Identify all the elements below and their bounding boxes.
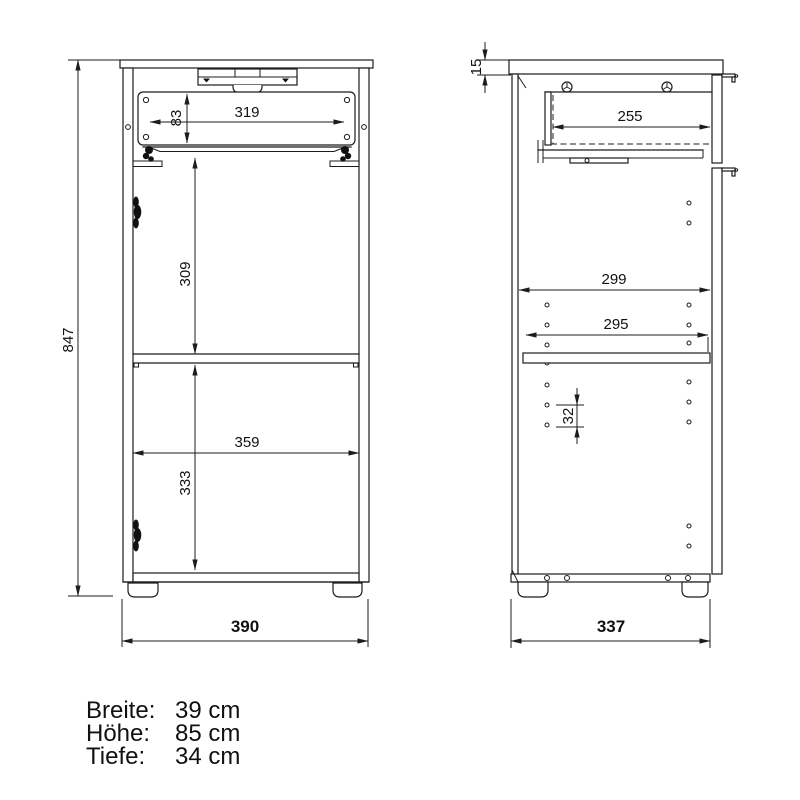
drawer-front-side	[712, 75, 722, 163]
middle-shelf-side	[523, 353, 710, 363]
top-panel	[120, 60, 373, 68]
spec-label: Tiefe:	[86, 745, 175, 768]
dim-drawer-inner-width: 319	[234, 104, 259, 121]
door-hinges	[133, 197, 141, 552]
dim-interior-width: 359	[234, 434, 259, 451]
dim-overall-height: 847	[60, 327, 77, 352]
back-panel	[512, 74, 518, 582]
spec-value: 85 cm	[175, 722, 240, 745]
spec-row-width: Breite: 39 cm	[86, 699, 240, 722]
front-right-foot	[333, 583, 362, 597]
technical-drawing-page: 847 83 319 309 359 333 390	[0, 0, 800, 800]
side-view: 15 255 299 295 32 337	[468, 42, 738, 648]
bottom-panel	[133, 573, 359, 582]
side-base	[511, 570, 710, 597]
spec-row-height: Höhe: 85 cm	[86, 722, 240, 745]
dim-hole-pitch: 32	[560, 408, 577, 425]
right-side-panel	[359, 68, 369, 582]
dimensions-summary: Breite: 39 cm Höhe: 85 cm Tiefe: 34 cm	[86, 699, 240, 768]
shelf-pin-holes-left	[545, 303, 549, 427]
dim-overall-width: 390	[231, 617, 259, 636]
dim-drawer-front-height: 83	[168, 110, 185, 127]
dim-lower-compartment: 333	[177, 470, 194, 495]
drawer-slide-mechanism	[538, 140, 703, 163]
front-view: 847 83 319 309 359 333 390	[60, 60, 373, 647]
middle-shelf-front	[133, 354, 359, 367]
side-back-foot	[518, 582, 548, 597]
door-side	[712, 168, 722, 574]
spec-value: 39 cm	[175, 699, 240, 722]
mounting-bracket-lower	[722, 168, 738, 176]
spec-value: 34 cm	[175, 745, 240, 768]
spec-label: Breite:	[86, 699, 175, 722]
dim-interior-depth: 299	[601, 271, 626, 288]
finger-pull-notch	[233, 85, 262, 93]
spec-label: Höhe:	[86, 722, 175, 745]
dim-shelf-depth: 295	[603, 316, 628, 333]
side-front-foot	[682, 582, 708, 597]
dim-overall-depth: 337	[597, 617, 625, 636]
mounting-bracket-upper	[722, 74, 738, 82]
side-dimensions: 15 255 299 295 32 337	[468, 42, 710, 648]
cabinet-technical-drawing: 847 83 319 309 359 333 390	[0, 0, 800, 800]
spec-row-depth: Tiefe: 34 cm	[86, 745, 240, 768]
top-screws	[562, 82, 672, 92]
front-left-foot	[128, 583, 158, 597]
top-panel-side	[509, 60, 723, 74]
shelf-pin-holes-right	[687, 201, 691, 548]
dim-upper-compartment: 309	[177, 261, 194, 286]
bottom-panel-side	[511, 574, 710, 582]
drawer-handle	[198, 69, 297, 93]
hinge-upper	[133, 197, 141, 229]
left-side-panel	[123, 68, 133, 582]
dim-drawer-depth: 255	[617, 108, 642, 125]
hinge-lower	[133, 520, 141, 552]
dim-top-panel-thickness: 15	[468, 59, 485, 76]
